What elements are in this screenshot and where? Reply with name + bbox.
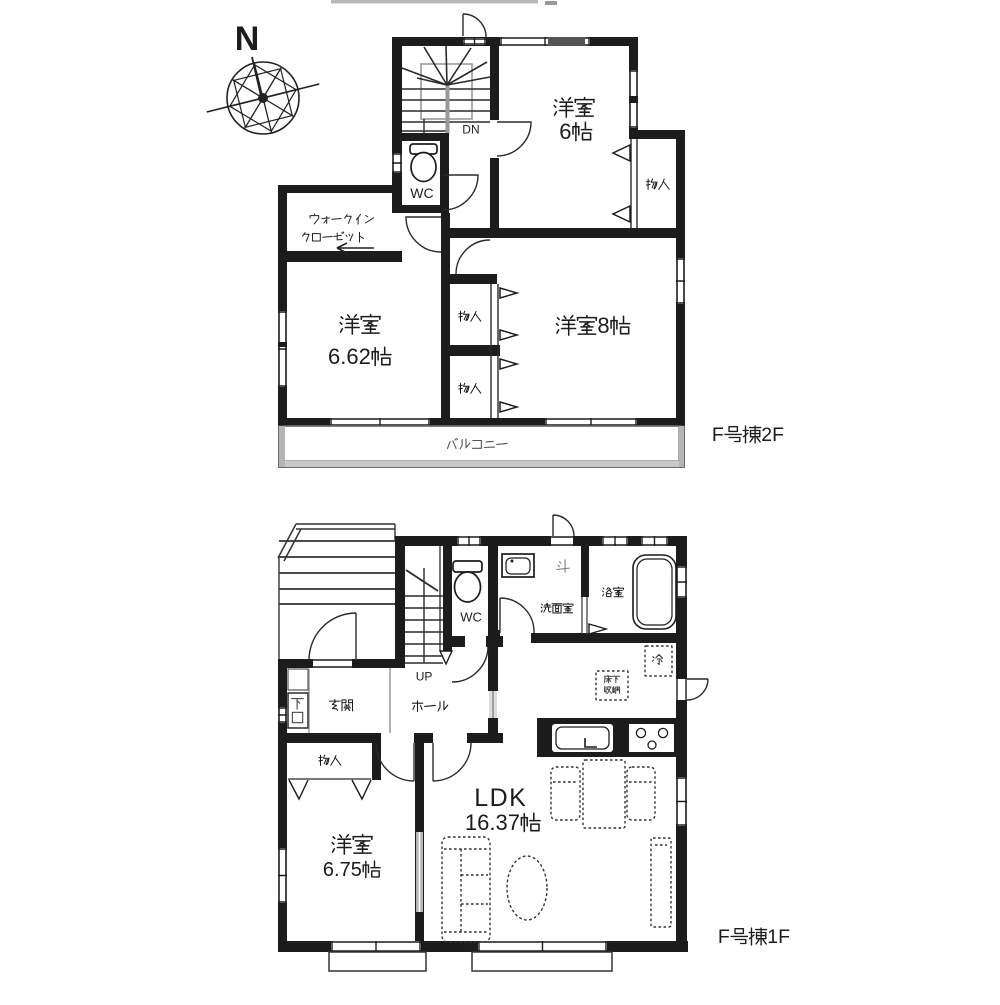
svg-text:6.75: 6.75 [323, 859, 362, 881]
svg-text:1F: 1F [767, 926, 790, 948]
svg-text:F: F [718, 926, 730, 948]
svg-text:LDK: LDK [474, 784, 527, 812]
svg-text:2F: 2F [761, 424, 784, 446]
svg-text:F: F [712, 424, 724, 446]
svg-text:16.37: 16.37 [465, 810, 520, 835]
svg-text:DN: DN [462, 122, 479, 136]
svg-text:8: 8 [597, 313, 609, 338]
svg-text:WC: WC [410, 185, 433, 201]
svg-text:UP: UP [416, 669, 433, 683]
svg-text:N: N [235, 20, 260, 58]
svg-text:WC: WC [460, 610, 482, 625]
svg-text:6: 6 [559, 119, 571, 144]
svg-text:6.62: 6.62 [328, 344, 371, 369]
